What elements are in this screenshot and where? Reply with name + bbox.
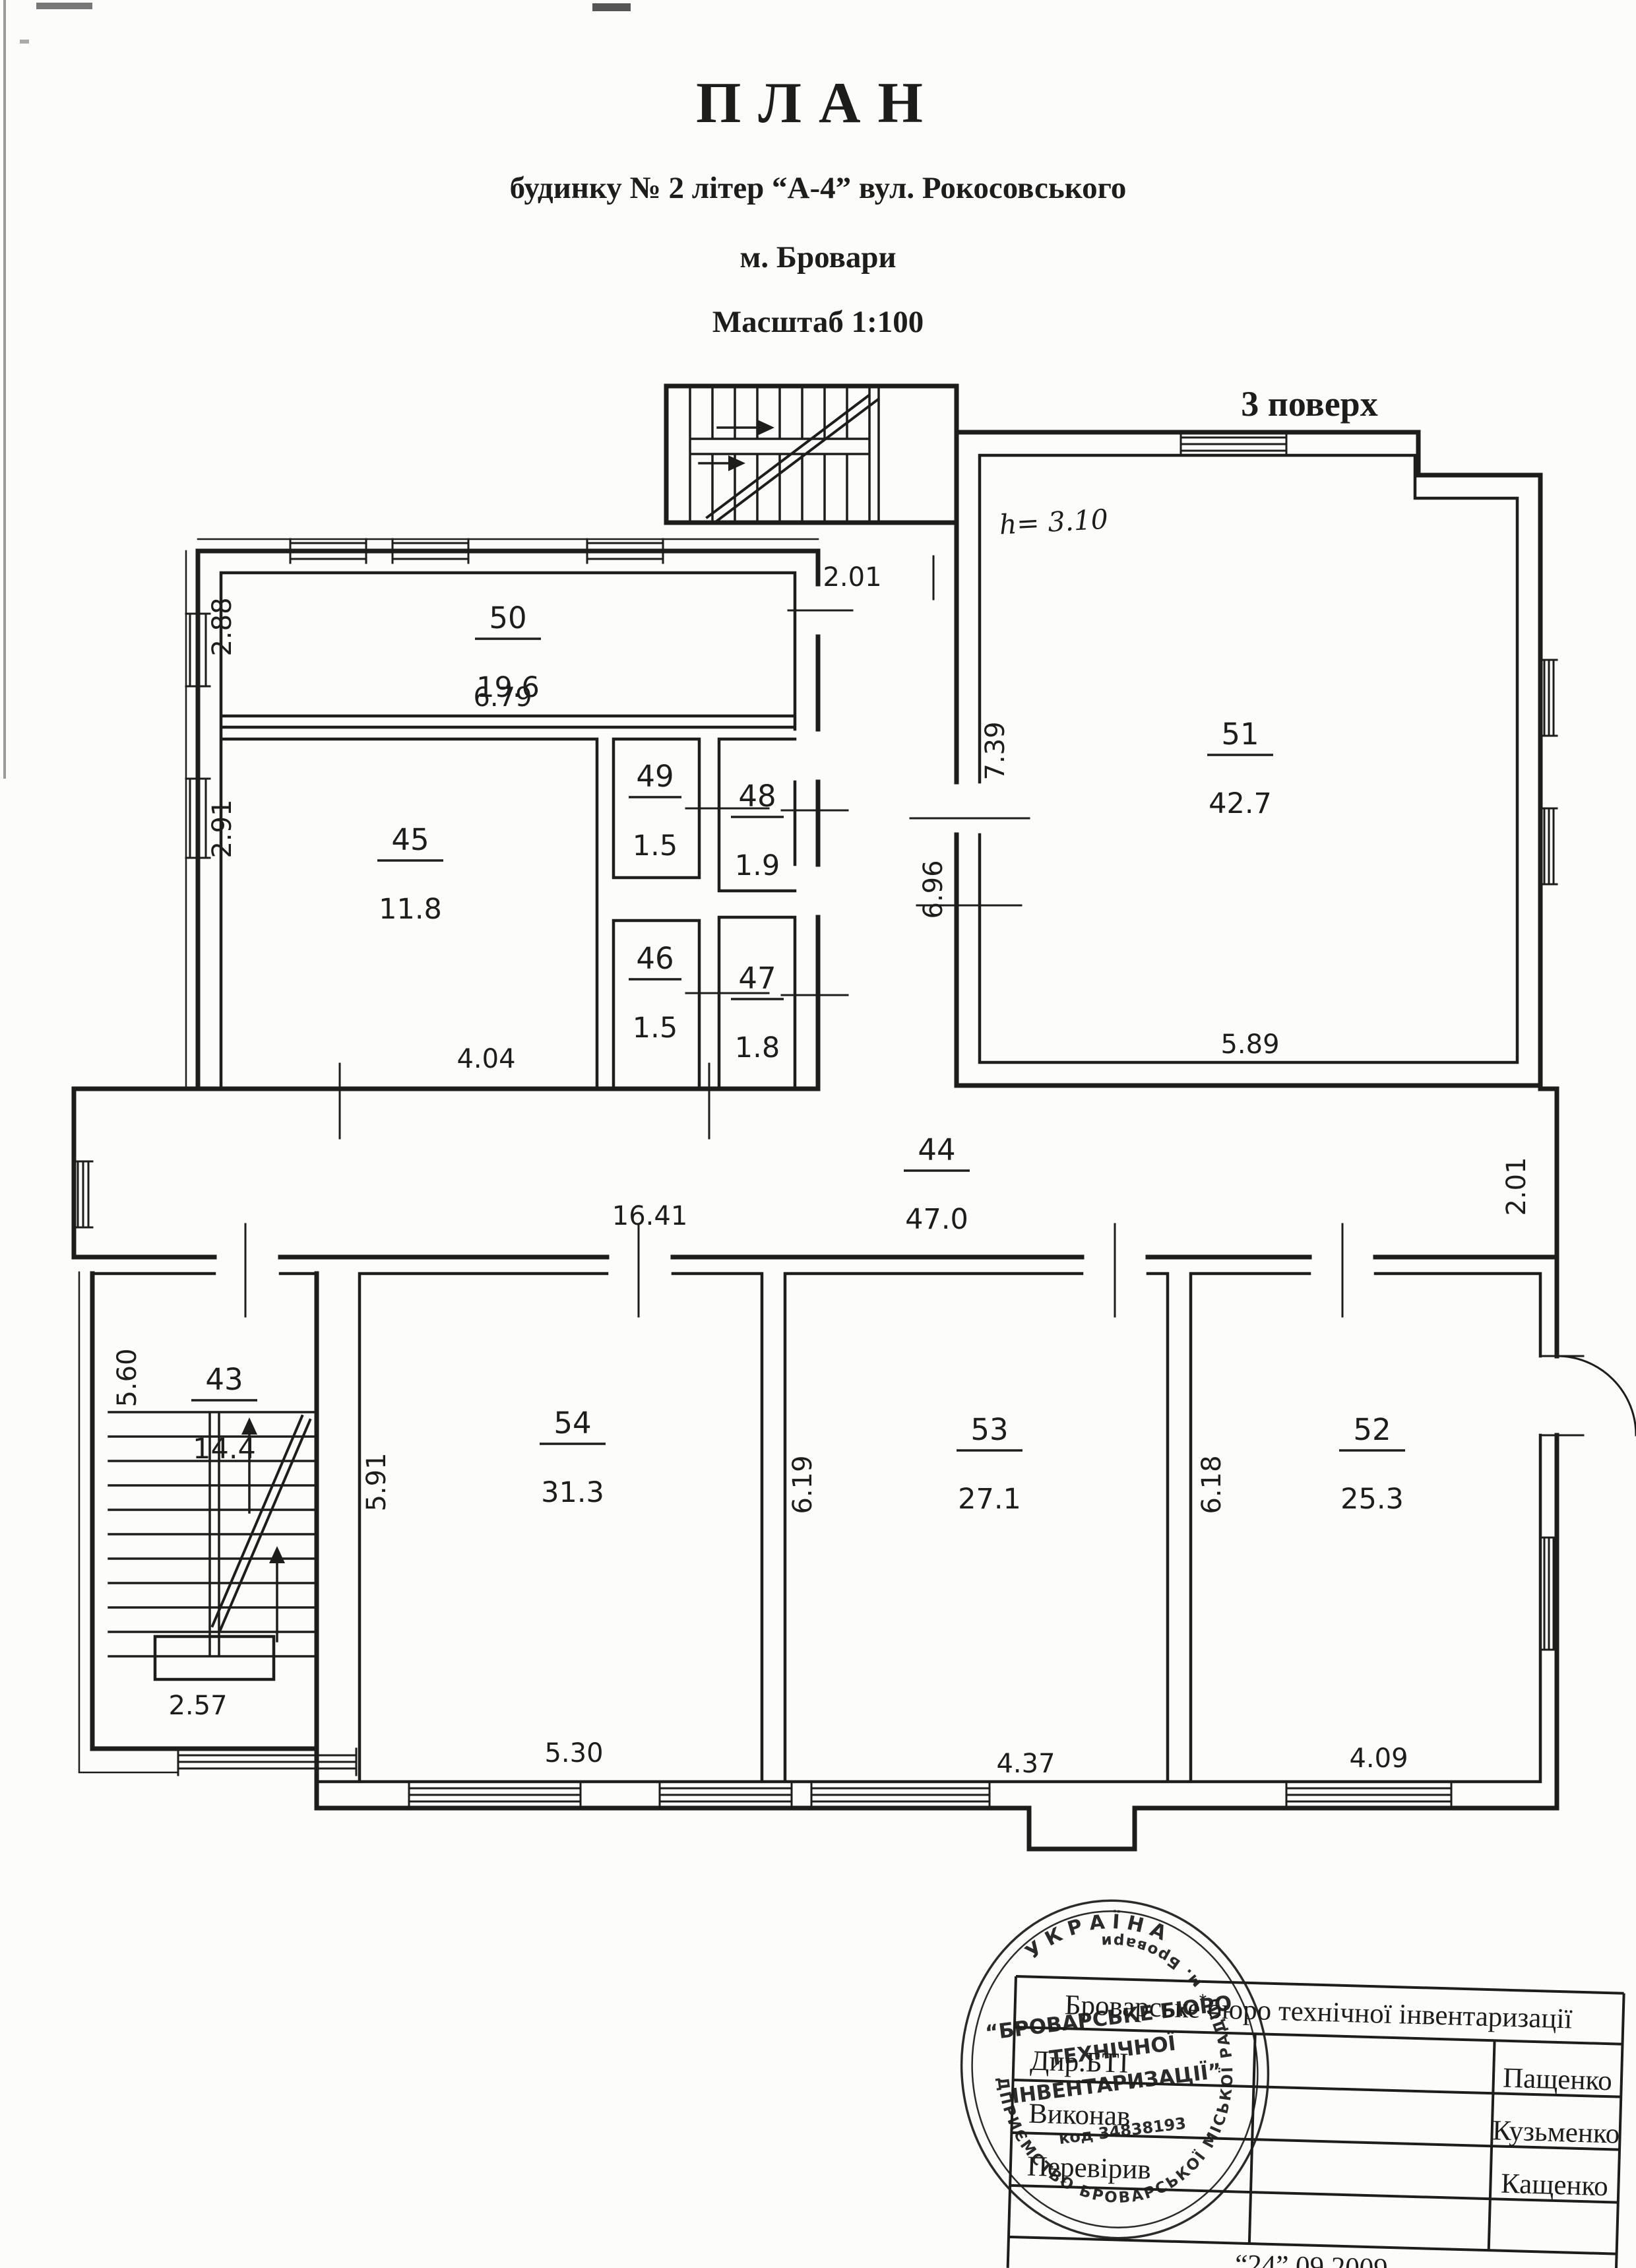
window-hatches (74, 432, 1557, 1808)
room-number: 49 (636, 759, 674, 794)
arrow-head-icon (757, 420, 774, 436)
dim-label: 16.41 (612, 1201, 688, 1231)
dim-label: 2.91 (207, 799, 237, 858)
scanned-floor-plan-page: ПЛАН будинку № 2 літер “А-4” вул. Рокосо… (0, 0, 1636, 2268)
dim-label: 6.79 (473, 682, 532, 713)
room-number: 43 (205, 1362, 243, 1397)
arrow-head-icon (269, 1546, 285, 1563)
scan-mark (36, 3, 92, 9)
dim-label: 5.91 (362, 1452, 392, 1511)
dim-label: 5.30 (544, 1738, 603, 1768)
page-title: ПЛАН (696, 71, 940, 135)
ceiling-height-note: h= 3.10 (999, 503, 1109, 541)
room-number: 45 (391, 822, 429, 857)
table-date: “24” 09 2009 (1234, 2249, 1388, 2268)
dim-label: 2.57 (168, 1691, 227, 1721)
table-role: Перевірив (1026, 2151, 1151, 2186)
dim-label: 4.04 (456, 1044, 515, 1074)
room-area: 25.3 (1340, 1483, 1404, 1516)
header: ПЛАН будинку № 2 літер “А-4” вул. Рокосо… (510, 71, 1378, 540)
scan-mark (592, 3, 631, 11)
room-number: 48 (738, 779, 776, 814)
scan-mark (20, 40, 29, 44)
exterior-walls (74, 386, 1557, 1849)
address-line: будинку № 2 літер “А-4” вул. Рокосовсько… (510, 171, 1127, 205)
dim-label: 5.60 (112, 1348, 142, 1407)
room-number: 54 (553, 1406, 591, 1441)
table-org-title: Броварське бюро технічної інвентаризації (1064, 1990, 1573, 2034)
room-area: 1.8 (735, 1031, 780, 1064)
room-number: 51 (1221, 717, 1259, 752)
plan-walls (74, 386, 1636, 1849)
room-area: 27.1 (958, 1483, 1021, 1516)
room-area: 42.7 (1209, 787, 1272, 820)
dim-label: 4.37 (996, 1749, 1055, 1779)
scale-line: Масштаб 1:100 (712, 305, 924, 339)
stair-arrow-heads (241, 420, 774, 1563)
dimension-labels: 2.01 2.88 6.79 2.91 4.04 7.39 6.96 5.89 … (112, 562, 1532, 1779)
dim-label: 2.01 (1501, 1157, 1532, 1215)
table-role: Дир.БТІ (1030, 2046, 1129, 2079)
dim-label: 5.89 (1220, 1029, 1279, 1060)
room-number: 46 (636, 941, 674, 976)
city-line: м. Бровари (739, 240, 896, 275)
dim-label: 7.39 (980, 721, 1011, 780)
floor-label: 3 поверх (1241, 384, 1377, 424)
room-area: 1.9 (735, 849, 780, 882)
bti-round-stamp: УКРАЇНА * КОМУНАЛЬНЕ ПІДПРИЄМСТВО БРОВАР… (0, 0, 1287, 2268)
dim-label: 6.18 (1197, 1455, 1227, 1514)
dim-label: 2.88 (207, 597, 237, 656)
room-number: 53 (970, 1412, 1008, 1447)
room-number: 50 (489, 600, 526, 635)
room-area: 47.0 (905, 1203, 968, 1236)
room-area: 14.4 (193, 1433, 256, 1466)
room-area: 1.5 (633, 1012, 677, 1045)
dim-label: 6.19 (788, 1455, 818, 1514)
table-name: Кащенко (1501, 2168, 1609, 2203)
dim-label: 4.09 (1349, 1743, 1408, 1774)
arrow-head-icon (728, 455, 745, 471)
dim-label: 6.96 (918, 860, 949, 919)
door-swing-arc (1557, 1356, 1636, 1435)
table-role: Виконав (1028, 2098, 1131, 2132)
approval-table: Броварське бюро технічної інвентаризації… (1007, 1976, 1623, 2268)
room-area: 1.5 (633, 829, 677, 862)
room-number: 52 (1353, 1412, 1391, 1447)
room-area: 31.3 (541, 1476, 604, 1509)
outer-offset-lines (79, 539, 818, 1772)
dim-label: 2.01 (823, 562, 881, 593)
scan-artifacts (5, 0, 631, 779)
stair-treads-upper (690, 386, 879, 523)
door-opening-ticks (245, 556, 1583, 1435)
room-number: 47 (738, 961, 776, 996)
room-area: 11.8 (379, 893, 442, 926)
table-name: Пащенко (1503, 2063, 1613, 2097)
room-number: 44 (918, 1132, 955, 1167)
table-name: Кузьменко (1492, 2115, 1620, 2149)
floor-plan-drawing: ПЛАН будинку № 2 літер “А-4” вул. Рокосо… (0, 0, 1636, 2268)
